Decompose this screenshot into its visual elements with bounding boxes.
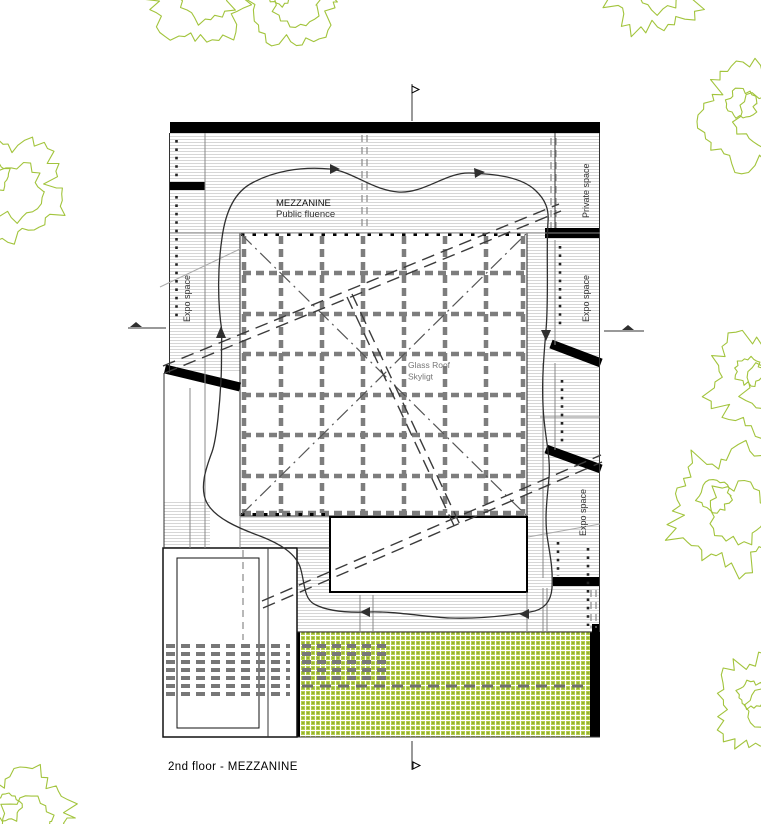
tree-icon [140,0,255,42]
label-glass-roof-1: Glass Roof [408,360,451,370]
label-glass-roof-2: Skyligt [408,372,434,382]
label-mezzanine: MEZZANINE [276,198,331,209]
tree-icon [241,0,338,46]
label-expo-right-lower: Expo space [578,489,588,536]
section-marker-left [128,322,166,328]
label-public-fluence: Public fluence [276,209,335,220]
floor-plan-drawing: MEZZANINE Public fluence Glass Roof Skyl… [0,0,761,824]
void-opening [330,517,527,592]
tree-icon [702,329,761,439]
floor-plan-sheet: MEZZANINE Public fluence Glass Roof Skyl… [0,0,761,824]
plan-caption: 2nd floor - MEZZANINE [168,761,298,773]
section-marker-top [412,84,419,121]
section-marker-right [604,325,644,331]
tree-icon [665,440,761,579]
tree-icon [594,0,704,37]
tree-icon [717,647,761,764]
label-expo-right-upper: Expo space [581,275,591,322]
tree-icon [0,135,65,245]
section-marker-bottom [412,741,420,770]
tree-icon [0,765,77,824]
label-expo-left: Expo space [182,275,192,322]
tree-icon [697,58,761,174]
label-private-right: Private space [581,163,591,218]
